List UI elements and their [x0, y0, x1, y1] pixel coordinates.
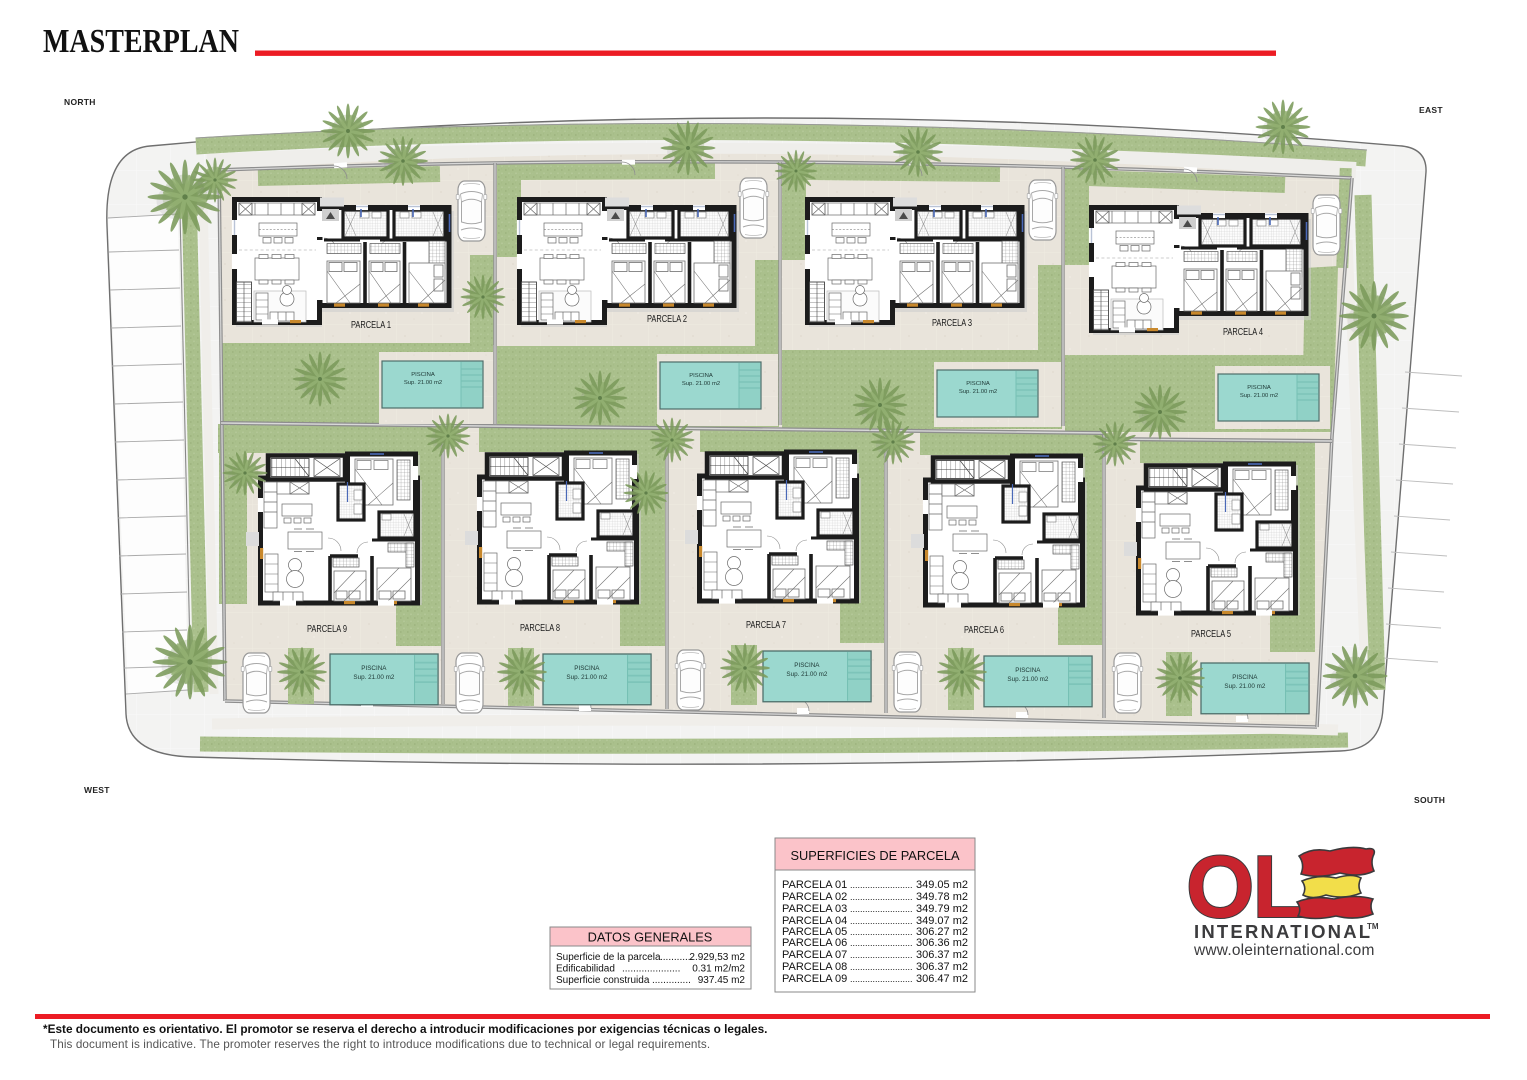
svg-text:PARCELA 03: PARCELA 03 — [782, 903, 847, 915]
svg-text:SUPERFICIES DE PARCELA: SUPERFICIES DE PARCELA — [790, 848, 959, 863]
svg-text:Superficie construida: Superficie construida — [556, 975, 650, 986]
svg-text:*Este documento es orientativo: *Este documento es orientativo. El promo… — [43, 1022, 767, 1036]
svg-text:SOUTH: SOUTH — [1414, 795, 1445, 805]
svg-text:PARCELA 8: PARCELA 8 — [520, 622, 560, 634]
svg-text:.........................: ......................... — [850, 880, 913, 890]
svg-text:.........................: ......................... — [850, 938, 913, 948]
svg-text:.........................: ......................... — [850, 927, 913, 937]
svg-text:306.37 m2: 306.37 m2 — [916, 949, 968, 961]
svg-text:PARCELA 5: PARCELA 5 — [1191, 628, 1231, 640]
svg-text:306.47 m2: 306.47 m2 — [916, 973, 968, 985]
svg-text:2.929,53 m2: 2.929,53 m2 — [689, 952, 745, 963]
svg-text:.........................: ......................... — [850, 904, 913, 914]
svg-text:..............: .............. — [652, 975, 691, 986]
svg-text:.........................: ......................... — [850, 974, 913, 984]
svg-text:PARCELA 9: PARCELA 9 — [307, 623, 347, 635]
svg-text:PARCELA 1: PARCELA 1 — [351, 319, 391, 331]
svg-text:INTERNATIONAL: INTERNATIONAL — [1194, 921, 1372, 942]
svg-text:PARCELA 08: PARCELA 08 — [782, 961, 847, 973]
svg-text:PARCELA 3: PARCELA 3 — [932, 317, 972, 329]
svg-text:............: ............ — [660, 952, 693, 963]
svg-text:.........................: ......................... — [850, 950, 913, 960]
svg-text:This document is indicative. T: This document is indicative. The promote… — [50, 1038, 710, 1051]
svg-text:TM: TM — [1367, 922, 1379, 931]
svg-text:.........................: ......................... — [850, 892, 913, 902]
svg-text:349.79 m2: 349.79 m2 — [916, 903, 968, 915]
svg-text:PARCELA 09: PARCELA 09 — [782, 973, 847, 985]
svg-text:Superficie de la parcela: Superficie de la parcela — [556, 952, 661, 963]
svg-text:WEST: WEST — [84, 785, 110, 795]
svg-text:PARCELA 2: PARCELA 2 — [647, 313, 687, 325]
svg-text:349.05 m2: 349.05 m2 — [916, 879, 968, 891]
svg-text:PARCELA 06: PARCELA 06 — [782, 937, 847, 949]
svg-text:306.37 m2: 306.37 m2 — [916, 961, 968, 973]
svg-text:306.36 m2: 306.36 m2 — [916, 937, 968, 949]
svg-text:PARCELA 07: PARCELA 07 — [782, 949, 847, 961]
svg-text:PARCELA 6: PARCELA 6 — [964, 624, 1004, 636]
svg-text:PARCELA 01: PARCELA 01 — [782, 879, 847, 891]
svg-text:PARCELA 7: PARCELA 7 — [746, 619, 786, 631]
svg-text:0.31 m2/m2: 0.31 m2/m2 — [692, 964, 745, 975]
svg-text:EAST: EAST — [1419, 105, 1443, 115]
svg-text:937.45 m2: 937.45 m2 — [698, 975, 746, 986]
svg-text:www.oleinternational.com: www.oleinternational.com — [1193, 942, 1375, 959]
svg-text:DATOS GENERALES: DATOS GENERALES — [588, 930, 713, 945]
svg-text:PARCELA 4: PARCELA 4 — [1223, 326, 1263, 338]
svg-text:.....................: ..................... — [622, 964, 680, 975]
svg-text:349.78 m2: 349.78 m2 — [916, 891, 968, 903]
svg-text:NORTH: NORTH — [64, 97, 96, 107]
svg-text:.........................: ......................... — [850, 962, 913, 972]
svg-text:.........................: ......................... — [850, 916, 913, 926]
svg-text:PARCELA 02: PARCELA 02 — [782, 891, 847, 903]
svg-text:Edificabilidad: Edificabilidad — [556, 964, 615, 975]
svg-text:MASTERPLAN: MASTERPLAN — [43, 23, 239, 60]
